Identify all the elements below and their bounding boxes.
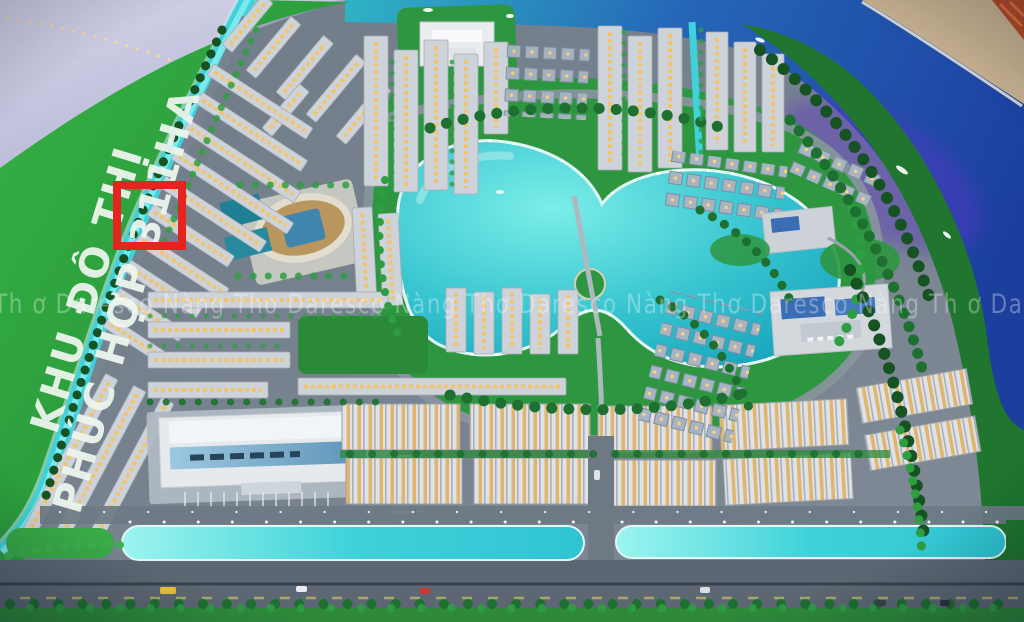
scale-model-photo: KHU ĐÔ THỊ PHÚC HỢP 311HA Th ơ Daresco N… — [0, 0, 1024, 622]
watermark-text: Th ơ Daresco Nàng Thơ Daresco Nàng Thơ D… — [0, 289, 1024, 320]
site-model-scene: KHU ĐÔ THỊ PHÚC HỢP 311HA Th ơ Daresco N… — [0, 0, 1024, 622]
